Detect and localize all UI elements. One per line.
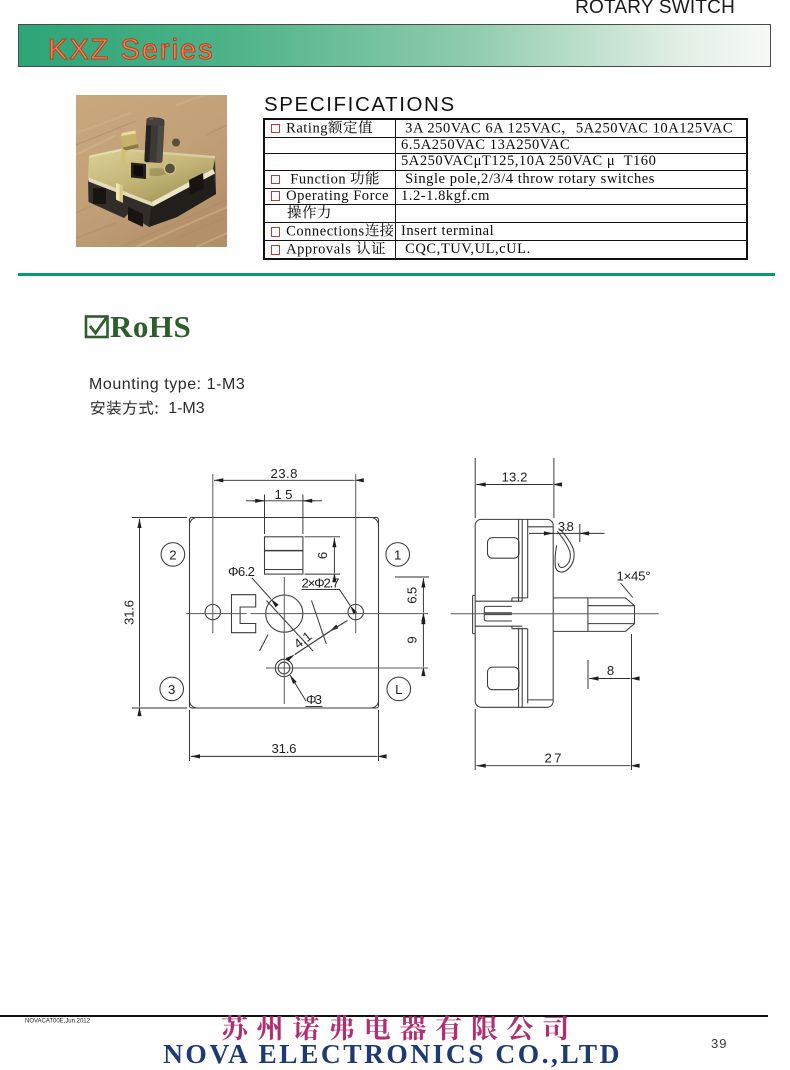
svg-text:Φ3: Φ3 <box>306 692 322 707</box>
svg-text:2: 2 <box>169 547 176 562</box>
svg-text:L: L <box>395 682 402 697</box>
svg-text:4.1: 4.1 <box>291 628 315 651</box>
svg-text:13.2: 13.2 <box>502 470 528 485</box>
svg-text:2×Φ2.7: 2×Φ2.7 <box>302 576 340 591</box>
svg-text:27: 27 <box>545 751 562 766</box>
svg-text:15: 15 <box>275 487 293 502</box>
svg-text:8: 8 <box>607 663 614 678</box>
svg-text:1: 1 <box>394 547 401 562</box>
svg-text:6.5: 6.5 <box>405 587 420 604</box>
svg-text:3.8: 3.8 <box>558 519 574 534</box>
svg-text:31.6: 31.6 <box>272 741 297 756</box>
svg-text:6: 6 <box>315 552 330 559</box>
svg-text:23.8: 23.8 <box>271 466 298 481</box>
svg-text:Φ6.2: Φ6.2 <box>228 564 255 579</box>
svg-text:31.6: 31.6 <box>122 600 137 625</box>
svg-text:1×45°: 1×45° <box>617 569 651 584</box>
svg-text:3: 3 <box>168 682 175 697</box>
svg-text:9: 9 <box>405 636 420 643</box>
